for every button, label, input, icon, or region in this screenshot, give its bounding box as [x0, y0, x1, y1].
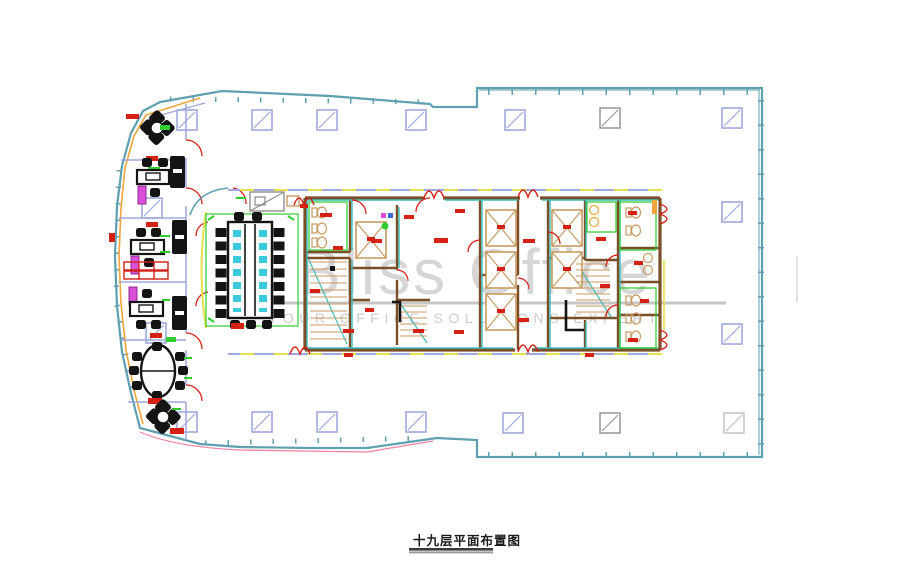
printer [287, 196, 299, 206]
column-icon [317, 110, 337, 130]
column-icon [722, 324, 742, 344]
left-wing-furniture [124, 109, 192, 435]
boardroom-yellow-wall [202, 212, 207, 328]
cad-floorplan-viewport: Bliss Office YOUR OFFICE SOLUTIONS EXPER… [0, 0, 906, 571]
toilet-icon [626, 225, 641, 236]
stove-icon [590, 218, 599, 227]
toilet-icon [312, 223, 327, 234]
column-icon [722, 202, 742, 222]
drawing-title: 十九层平面布置图 [413, 533, 521, 548]
column-icon [252, 412, 272, 432]
counter-orange [652, 200, 657, 214]
elevator-shaft-icon [486, 210, 516, 246]
office-module [137, 156, 185, 204]
boardroom [190, 188, 299, 329]
oval-meeting-table [129, 337, 192, 404]
column-icon [406, 412, 426, 432]
title-underline-dark [409, 548, 493, 551]
column-icon [722, 108, 742, 128]
elevator-shaft-icon [552, 210, 582, 246]
title-underline-gray [409, 551, 493, 553]
desk [137, 170, 169, 184]
door-arc-icon [186, 333, 202, 349]
floor-plan-drawing: Bliss Office YOUR OFFICE SOLUTIONS EXPER… [0, 0, 906, 571]
double-door-icon [518, 190, 538, 197]
column-icon [252, 110, 272, 130]
double-door-icon [424, 191, 444, 198]
column-icon [177, 110, 197, 130]
boundary-line-pink [140, 432, 433, 452]
stove-icon [590, 206, 599, 215]
door-arc-icon [186, 140, 202, 156]
column-icon [503, 413, 523, 433]
watermark-brand-text: Bliss Office [298, 236, 653, 308]
exterior-red-label [109, 233, 115, 242]
desk [130, 302, 163, 316]
mullion-ticks-left-lower [117, 305, 134, 400]
round-table-4-seats [139, 109, 176, 146]
column-icon [505, 110, 525, 130]
elevator-shaft-icon [486, 252, 516, 288]
door-arc-icon [186, 385, 202, 401]
column-icon [317, 412, 337, 432]
title-block: 十九层平面布置图 [409, 533, 521, 553]
column-icon [600, 413, 620, 433]
cabinet-magenta [138, 186, 146, 204]
door-arc-icon [352, 200, 366, 214]
desk [131, 240, 164, 254]
mullion-ticks-bottom-left [205, 438, 430, 443]
elevator-shaft-icon [486, 294, 516, 330]
column-icon [406, 110, 426, 130]
door-arc-icon [186, 188, 202, 204]
reception-desk [190, 188, 299, 215]
column-icon [724, 413, 744, 433]
column-icon [600, 108, 620, 128]
